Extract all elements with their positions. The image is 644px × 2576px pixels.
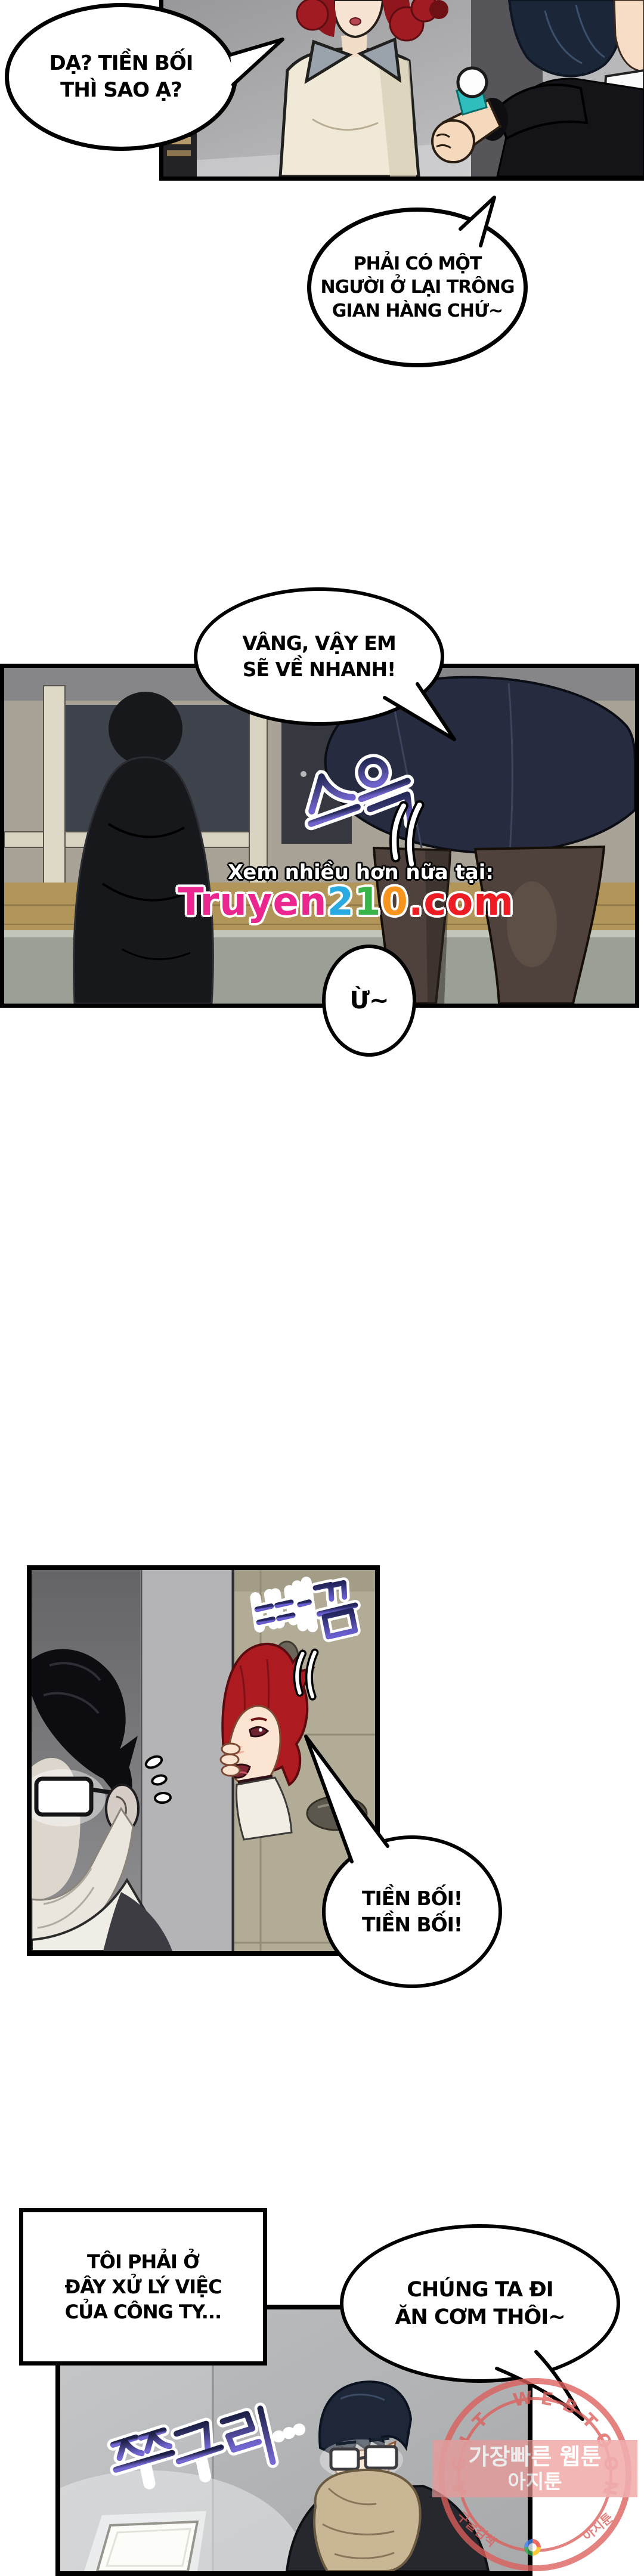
speech-text: TIỀN BỐI! — [362, 1912, 462, 1938]
speech-text: TIỀN BỐI! — [362, 1885, 462, 1912]
speech-text: VÂNG, VẬY EM — [242, 630, 395, 657]
speech-bubble-2: PHẢI CÓ MỘT NGƯỜI Ở LẠI TRÔNG GIAN HÀNG … — [307, 208, 528, 367]
speech-bubble-5: TIỀN BỐI! TIỀN BỐI! — [322, 1835, 502, 1988]
stamp-arc-letter: W — [512, 2388, 534, 2411]
stamp-banner: 가장빠른 웹툰 아지툰 — [432, 2440, 637, 2497]
speech-text: NGƯỜI Ở LẠI TRÔNG — [321, 275, 515, 299]
stamp-arc-letter: T — [469, 2410, 492, 2433]
google-logo-icon — [524, 2539, 541, 2556]
stamp-arc-letter: B — [559, 2394, 580, 2419]
hand-finger — [221, 1754, 239, 1765]
stamp-banner-text: 가장빠른 웹툰 — [469, 2444, 602, 2470]
glasses-lens — [366, 2447, 397, 2468]
watermark-site-digit: 0 — [382, 880, 409, 924]
bubble-tails — [0, 0, 644, 2576]
watermark-site-digit: 2 — [327, 880, 354, 924]
speech-text: PHẢI CÓ MỘT — [354, 252, 482, 276]
speech-bubble-1: DẠ? TIỀN BỐI THÌ SAO Ạ? — [5, 3, 237, 151]
comic-page: Xem nhiều hơn nữa tại: Truyen210.com DẠ?… — [0, 0, 644, 2576]
speech-bubble-4: Ừ~ — [322, 945, 416, 1057]
speech-text: THÌ SAO Ạ? — [60, 77, 182, 104]
mouth — [350, 18, 361, 25]
watermark-site-name: Truyen — [178, 880, 327, 924]
stamp-arc-letter: E — [539, 2388, 555, 2411]
hand-finger — [222, 1765, 240, 1776]
glasses-lens — [36, 1779, 91, 1815]
hand-finger — [222, 1744, 240, 1754]
glasses-lens — [331, 2449, 358, 2469]
watermark-site: Truyen210.com — [137, 880, 555, 924]
speech-text: ĂN CƠM THÔI~ — [395, 2303, 565, 2331]
speech-text: CHÚNG TA ĐI — [407, 2276, 553, 2303]
watermark-site-digit: 1 — [354, 880, 382, 924]
ceiling-light — [84, 2511, 206, 2571]
watermark-site-tld: .com — [408, 880, 514, 924]
wristwatch — [457, 68, 487, 114]
speech-text: CỦA CÔNG TY... — [65, 2299, 221, 2324]
stamp-arc-letter: T — [578, 2410, 601, 2433]
speech-text: SẼ VỀ NHANH! — [243, 657, 395, 683]
speech-text: ĐÂY XỬ LÝ VIỆC — [64, 2274, 221, 2299]
speech-text: TÔI PHẢI Ở — [87, 2249, 199, 2274]
fist — [432, 120, 474, 162]
stamp-banner-text: 아지툰 — [507, 2470, 562, 2493]
stamp-watermark: AGIT WEBTOON 가장빠른 웹툰 아지툰 구글검색 아지툰 — [438, 2378, 631, 2571]
speech-bubble-6: CHÚNG TA ĐI ĂN CƠM THÔI~ — [340, 2224, 620, 2383]
speech-box: TÔI PHẢI Ở ĐÂY XỬ LÝ VIỆC CỦA CÔNG TY... — [19, 2208, 267, 2366]
speech-bubble-3: VÂNG, VẬY EM SẼ VỀ NHANH! — [194, 587, 444, 726]
locker-handle — [307, 1797, 367, 1830]
speech-text: Ừ~ — [350, 985, 389, 1017]
sfx-peek-motion-marks — [291, 1649, 323, 1699]
speech-text: GIAN HÀNG CHỨ~ — [332, 299, 503, 323]
speech-text: DẠ? TIỀN BỐI — [49, 50, 193, 77]
scarf — [314, 2470, 420, 2571]
